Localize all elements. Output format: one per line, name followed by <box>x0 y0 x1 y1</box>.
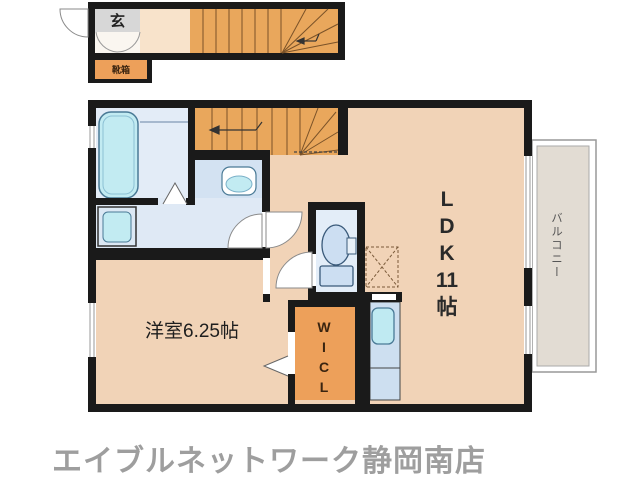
entrance-step-area <box>95 32 140 53</box>
floorplan-page: 玄 靴箱 L D K 11 帖 洋室6.25帖 W I C L バルコニー エイ… <box>0 0 640 480</box>
kitchen <box>370 302 400 400</box>
second-floor-block <box>88 100 596 412</box>
wicl-line: W <box>310 317 338 337</box>
agency-brand-text: エイブルネットワーク静岡南店 <box>52 436 592 480</box>
shoebox-label: 靴箱 <box>95 61 147 79</box>
ldk-line: K <box>427 240 467 267</box>
wicl-line: C <box>310 357 338 377</box>
kitchen-sink <box>372 308 394 344</box>
western-room-window <box>88 303 96 357</box>
entrance-label: 玄 <box>95 11 140 33</box>
wicl-line: L <box>310 377 338 397</box>
bathroom-window <box>88 126 96 148</box>
balcony-sliding-door <box>524 156 532 268</box>
toilet-room <box>316 210 357 292</box>
balcony-label: バルコニー <box>548 212 564 322</box>
stairs-2f <box>195 108 338 155</box>
ldk-line: D <box>427 213 467 240</box>
balcony <box>532 140 596 372</box>
toilet-bowl <box>322 225 350 265</box>
front-door-swing <box>60 9 88 37</box>
toilet-tank <box>347 238 356 254</box>
wicl-line: I <box>310 337 338 357</box>
ldk-line: 11 <box>427 267 467 294</box>
ldk-line: 帖 <box>427 294 467 321</box>
ldk-line: L <box>427 186 467 213</box>
wicl-label: W I C L <box>310 317 338 397</box>
western-room-label: 洋室6.25帖 <box>102 316 282 343</box>
toilet-base <box>320 266 353 286</box>
ldk-side-window <box>524 306 532 354</box>
entrance-hall-floor <box>140 9 190 53</box>
ldk-room-label: L D K 11 帖 <box>427 186 467 321</box>
bathtub <box>99 112 138 198</box>
